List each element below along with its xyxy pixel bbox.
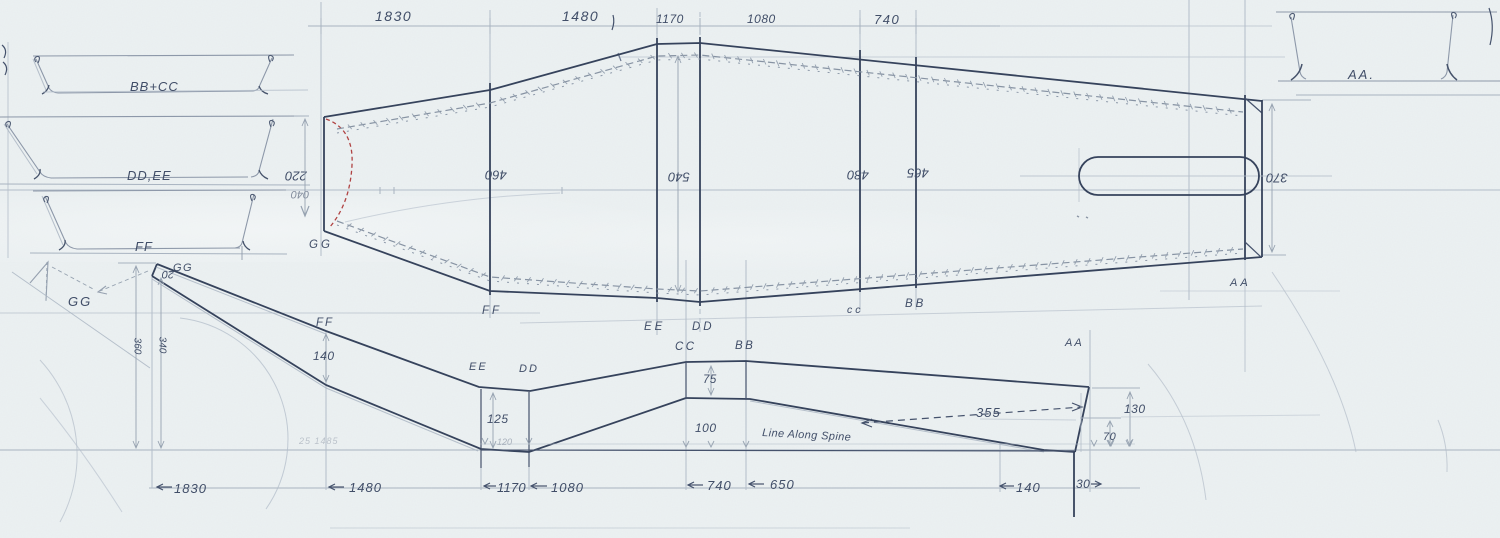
svg-text:040: 040 xyxy=(290,188,309,200)
svg-text:1830: 1830 xyxy=(174,481,207,496)
svg-text:1080: 1080 xyxy=(551,480,584,495)
svg-text:220: 220 xyxy=(284,169,307,184)
svg-text:GG: GG xyxy=(173,262,193,274)
svg-text:30: 30 xyxy=(1076,477,1090,491)
svg-text:125: 125 xyxy=(487,412,509,426)
svg-text:AA: AA xyxy=(1229,277,1251,289)
svg-text:FF: FF xyxy=(316,317,334,329)
svg-text:1830: 1830 xyxy=(375,8,412,24)
svg-text:650: 650 xyxy=(770,477,795,492)
svg-text:DD: DD xyxy=(692,321,715,333)
svg-text:540: 540 xyxy=(667,170,689,185)
svg-text:465: 465 xyxy=(906,166,928,181)
svg-text:740: 740 xyxy=(707,478,732,493)
svg-text:120: 120 xyxy=(497,437,512,447)
svg-text:BB+CC: BB+CC xyxy=(130,79,179,94)
svg-text:BB: BB xyxy=(905,298,926,310)
svg-text:100: 100 xyxy=(695,421,717,435)
svg-text:CC: CC xyxy=(675,341,697,353)
svg-text:355: 355 xyxy=(976,405,1001,420)
svg-text:BB: BB xyxy=(735,340,755,352)
svg-text:FF: FF xyxy=(482,305,502,317)
svg-text:740: 740 xyxy=(874,12,900,27)
svg-text:cc: cc xyxy=(847,304,864,316)
svg-text:25 1485: 25 1485 xyxy=(298,436,339,446)
svg-text:480: 480 xyxy=(846,168,868,183)
svg-text:370: 370 xyxy=(1265,171,1287,186)
svg-text:1080: 1080 xyxy=(747,12,776,26)
svg-text:AA.: AA. xyxy=(1347,67,1375,82)
svg-text:EE: EE xyxy=(469,361,488,373)
svg-text:70: 70 xyxy=(1103,431,1117,443)
svg-text:1480: 1480 xyxy=(562,8,599,24)
svg-text:140: 140 xyxy=(1016,480,1041,495)
svg-text:1170: 1170 xyxy=(656,12,684,26)
svg-text:EE: EE xyxy=(644,321,665,333)
svg-text:DD,EE: DD,EE xyxy=(127,168,172,183)
svg-text:GG: GG xyxy=(309,239,333,251)
svg-text:130: 130 xyxy=(1124,402,1146,416)
svg-text:140: 140 xyxy=(313,349,335,363)
svg-text:340: 340 xyxy=(156,337,167,354)
svg-text:360: 360 xyxy=(131,338,142,355)
svg-text:FF: FF xyxy=(135,239,153,254)
svg-text:1170: 1170 xyxy=(497,480,526,495)
svg-text:AA: AA xyxy=(1064,337,1084,349)
svg-text:75: 75 xyxy=(703,374,717,386)
svg-text:1480: 1480 xyxy=(349,480,382,495)
svg-text:460: 460 xyxy=(484,168,506,183)
svg-text:GG: GG xyxy=(68,294,92,309)
svg-text:DD: DD xyxy=(519,363,539,375)
